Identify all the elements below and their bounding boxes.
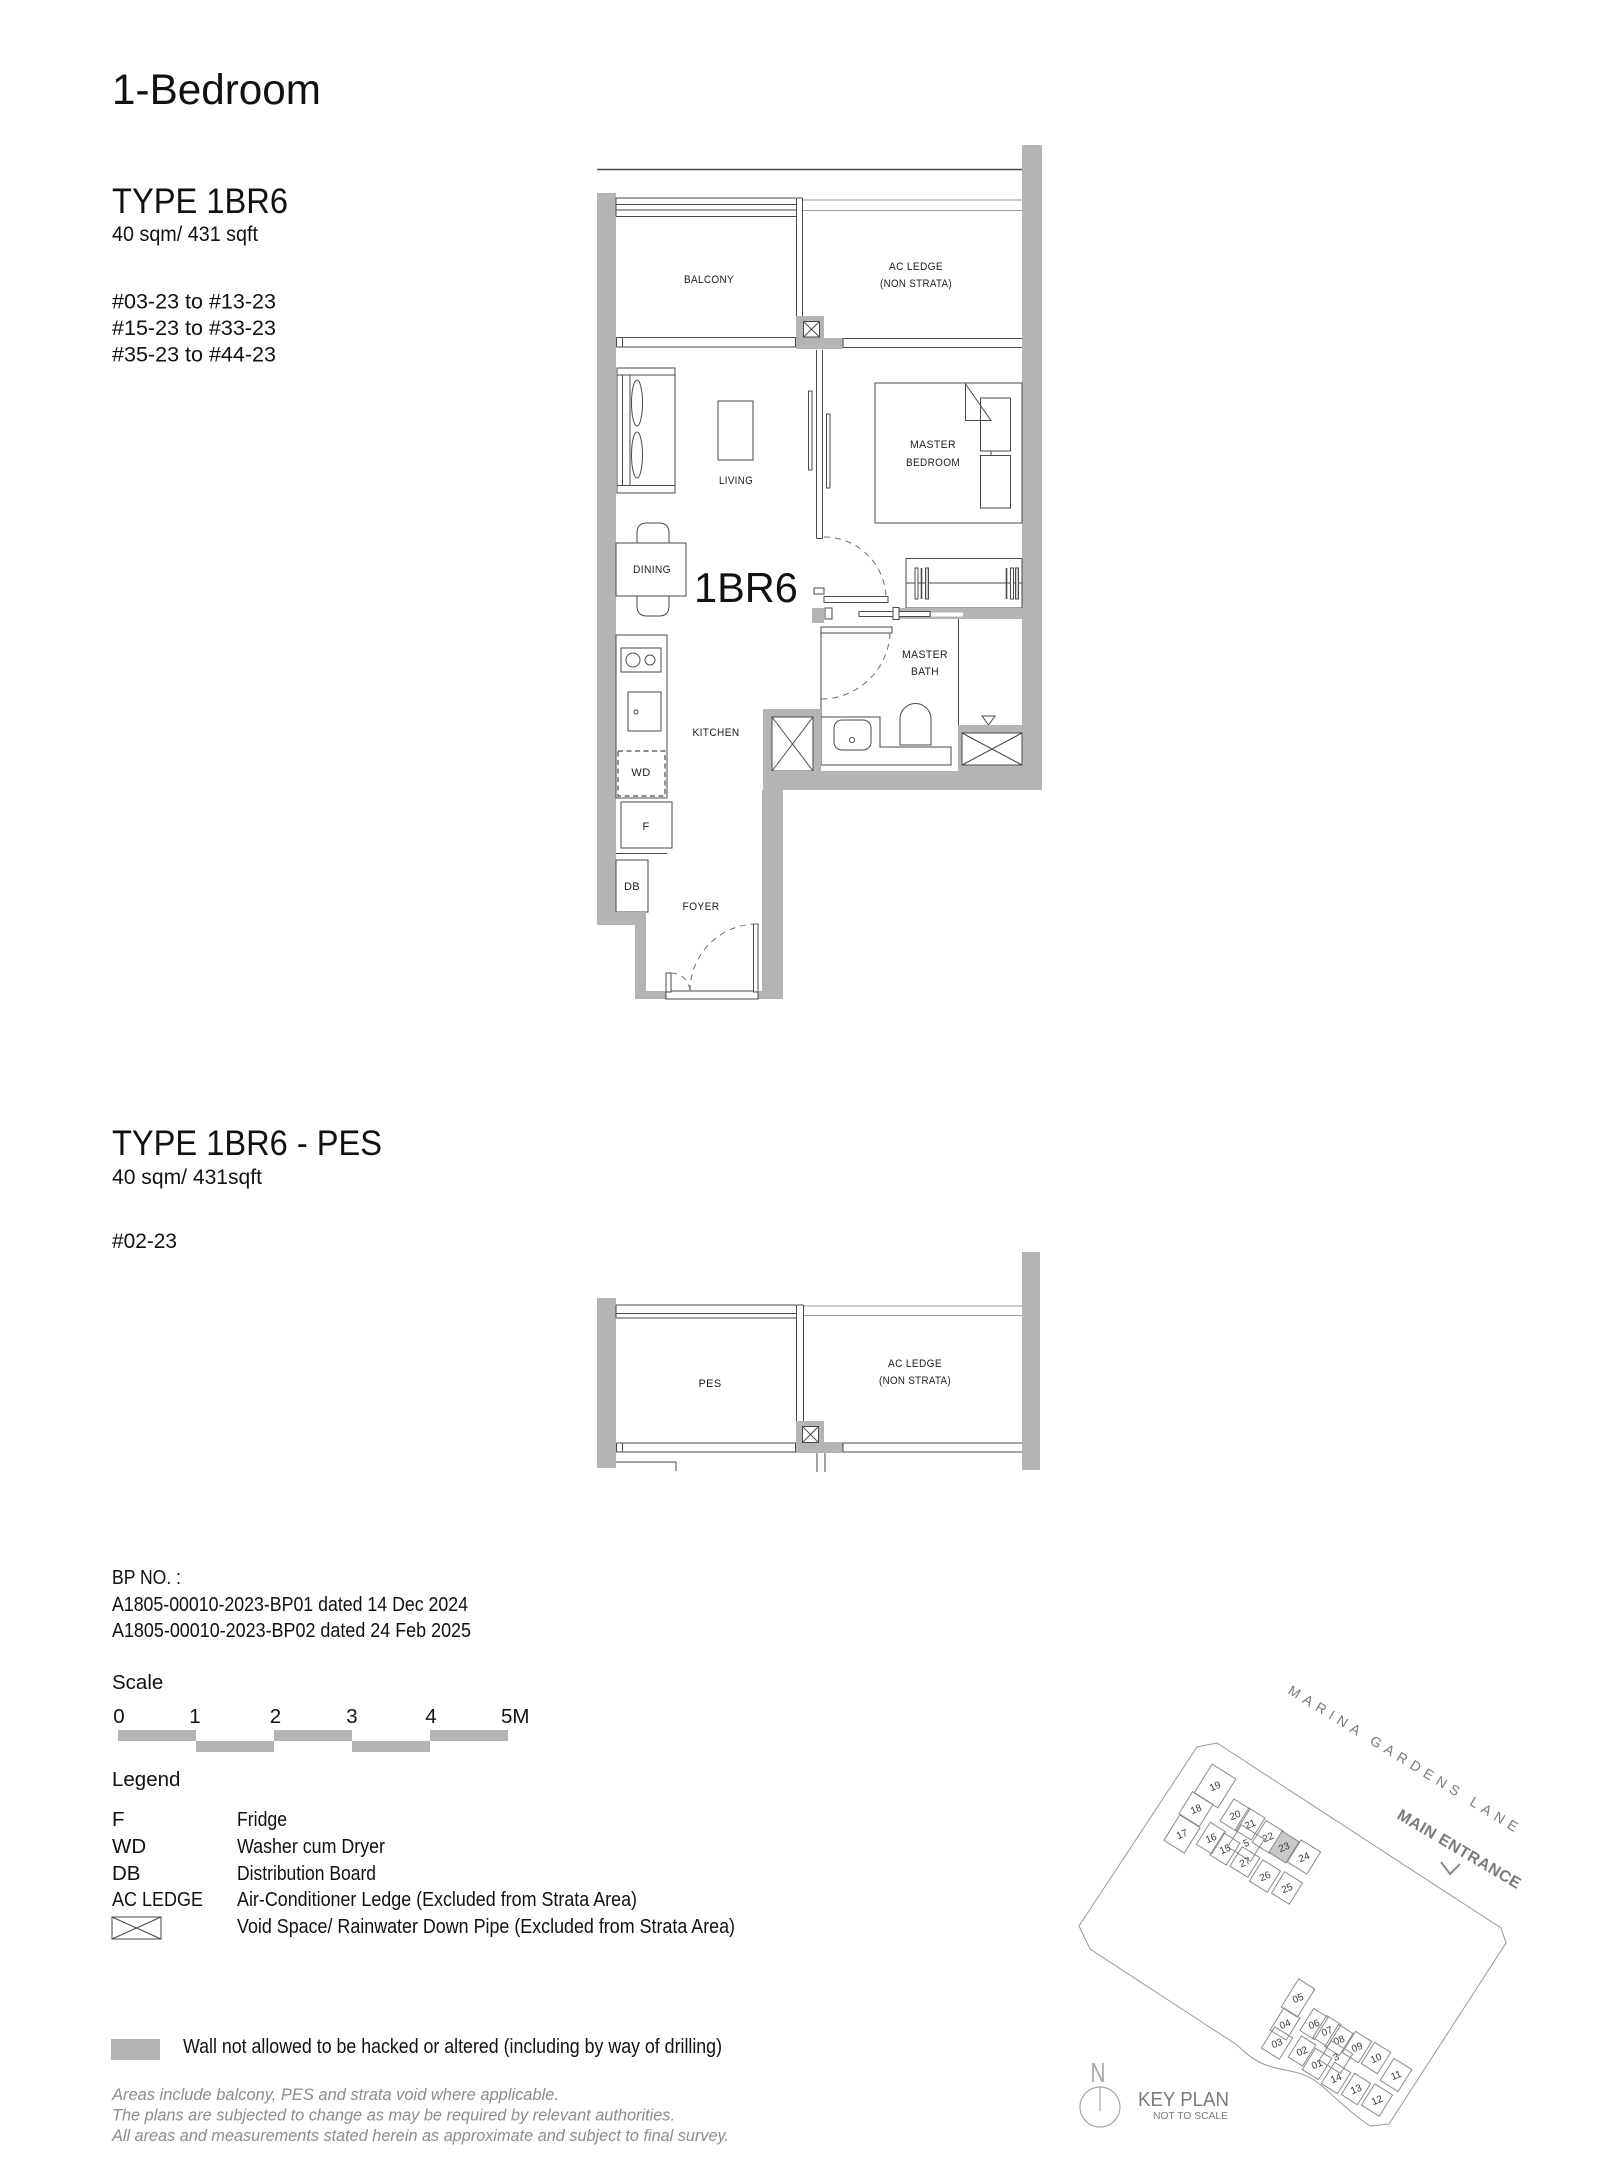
svg-text:2: 2 <box>270 1705 281 1728</box>
svg-text:Scale: Scale <box>112 1671 163 1694</box>
svg-text:25: 25 <box>1280 1882 1295 1897</box>
svg-text:WD: WD <box>112 1835 146 1858</box>
svg-text:F: F <box>112 1808 125 1831</box>
svg-text:DINING: DINING <box>633 564 671 576</box>
svg-text:1: 1 <box>189 1705 200 1728</box>
svg-text:Legend: Legend <box>112 1768 180 1791</box>
svg-text:MASTER: MASTER <box>910 439 956 451</box>
svg-text:KEY PLAN: KEY PLAN <box>1138 2089 1229 2111</box>
svg-text:05: 05 <box>1291 1992 1306 2007</box>
svg-text:4: 4 <box>425 1705 436 1728</box>
svg-text:40 sqm/ 431sqft: 40 sqm/ 431sqft <box>112 1166 262 1189</box>
svg-text:10: 10 <box>1369 2052 1384 2067</box>
svg-text:24: 24 <box>1297 1851 1312 1866</box>
svg-text:(NON STRATA): (NON STRATA) <box>879 1375 951 1387</box>
svg-text:Washer cum Dryer: Washer cum Dryer <box>237 1835 385 1858</box>
svg-text:1BR6: 1BR6 <box>694 564 798 611</box>
svg-text:F: F <box>642 821 649 833</box>
svg-text:FOYER: FOYER <box>683 901 720 913</box>
svg-text:WD: WD <box>631 767 650 779</box>
svg-text:17: 17 <box>1175 1828 1190 1843</box>
svg-text:Wall not allowed to be hacked: Wall not allowed to be hacked or altered… <box>183 2035 722 2058</box>
svg-text:27: 27 <box>1238 1856 1253 1871</box>
svg-text:DB: DB <box>624 881 640 893</box>
svg-text:The plans are subjected to cha: The plans are subjected to change as may… <box>112 2106 675 2125</box>
svg-text:03: 03 <box>1270 2037 1285 2052</box>
svg-text:13: 13 <box>1349 2083 1364 2098</box>
svg-text:Void Space/ Rainwater Down Pip: Void Space/ Rainwater Down Pipe (Exclude… <box>237 1915 735 1938</box>
svg-text:Distribution Board: Distribution Board <box>237 1862 376 1885</box>
svg-text:18: 18 <box>1189 1803 1204 1818</box>
svg-text:#02-23: #02-23 <box>112 1230 177 1253</box>
svg-text:KITCHEN: KITCHEN <box>693 727 740 739</box>
svg-text:Air-Conditioner Ledge (Exclude: Air-Conditioner Ledge (Excluded from Str… <box>237 1888 637 1911</box>
svg-text:15: 15 <box>1218 1843 1233 1858</box>
svg-text:#03-23 to #13-23: #03-23 to #13-23 <box>112 291 276 314</box>
svg-text:TYPE 1BR6 - PES: TYPE 1BR6 - PES <box>112 1124 382 1163</box>
svg-text:26: 26 <box>1258 1870 1273 1885</box>
svg-text:40 sqm/ 431 sqft: 40 sqm/ 431 sqft <box>112 223 258 246</box>
svg-text:12: 12 <box>1370 2094 1385 2109</box>
svg-text:#35-23 to #44-23: #35-23 to #44-23 <box>112 344 276 367</box>
svg-text:LIVING: LIVING <box>719 475 753 487</box>
svg-text:A1805-00010-2023-BP02 dated 24: A1805-00010-2023-BP02 dated 24 Feb 2025 <box>112 1619 471 1642</box>
svg-text:BALCONY: BALCONY <box>684 274 734 286</box>
svg-text:TYPE 1BR6: TYPE 1BR6 <box>112 182 288 221</box>
svg-text:BEDROOM: BEDROOM <box>906 457 960 469</box>
svg-text:0: 0 <box>113 1705 124 1728</box>
svg-text:PES: PES <box>699 1378 722 1390</box>
svg-text:21: 21 <box>1243 1818 1258 1833</box>
svg-text:(NON STRATA): (NON STRATA) <box>880 278 952 290</box>
svg-text:3: 3 <box>346 1705 357 1728</box>
svg-text:BATH: BATH <box>911 666 939 678</box>
svg-text:22: 22 <box>1261 1831 1276 1846</box>
svg-text:DB: DB <box>112 1862 140 1885</box>
svg-text:#15-23 to #33-23: #15-23 to #33-23 <box>112 317 276 340</box>
svg-text:Fridge: Fridge <box>237 1808 287 1831</box>
svg-text:AC LEDGE: AC LEDGE <box>112 1888 203 1911</box>
svg-text:5M: 5M <box>501 1705 529 1728</box>
svg-text:Areas include balcony, PES and: Areas include balcony, PES and strata vo… <box>111 2085 559 2104</box>
svg-text:All areas and measurements sta: All areas and measurements stated herein… <box>111 2126 729 2145</box>
svg-text:AC LEDGE: AC LEDGE <box>888 1358 942 1370</box>
svg-text:14: 14 <box>1329 2072 1344 2087</box>
svg-text:BP NO. :: BP NO. : <box>112 1566 181 1589</box>
svg-text:N: N <box>1091 2057 1106 2088</box>
svg-text:01: 01 <box>1310 2058 1325 2073</box>
svg-text:1-Bedroom: 1-Bedroom <box>112 66 321 114</box>
svg-text:MASTER: MASTER <box>902 649 948 661</box>
svg-text:A1805-00010-2023-BP01 dated 14: A1805-00010-2023-BP01 dated 14 Dec 2024 <box>112 1593 468 1616</box>
svg-text:11: 11 <box>1389 2069 1403 2083</box>
svg-text:19: 19 <box>1208 1780 1223 1795</box>
svg-text:NOT TO SCALE: NOT TO SCALE <box>1153 2110 1228 2122</box>
svg-text:AC LEDGE: AC LEDGE <box>889 261 943 273</box>
svg-text:09: 09 <box>1350 2041 1365 2056</box>
svg-text:3: 3 <box>1332 2052 1342 2064</box>
